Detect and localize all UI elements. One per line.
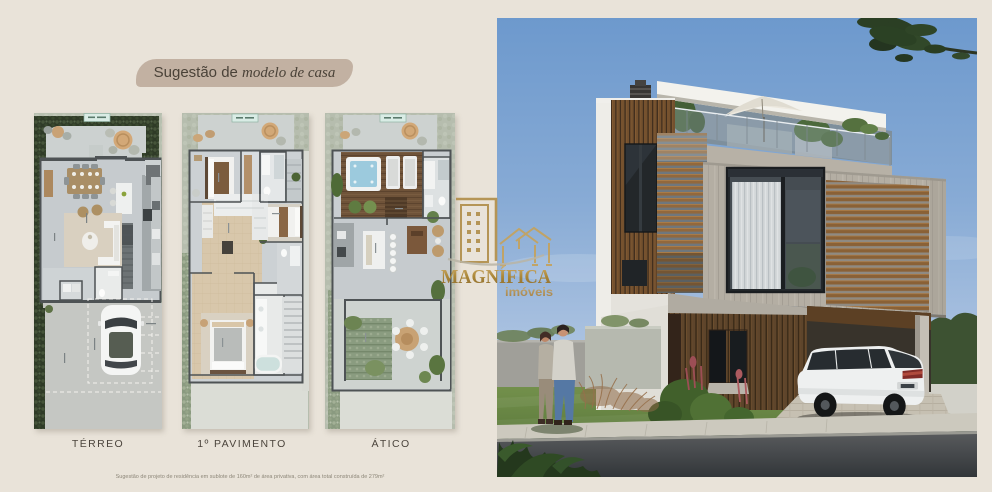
svg-text:imóveis: imóveis bbox=[505, 285, 553, 299]
